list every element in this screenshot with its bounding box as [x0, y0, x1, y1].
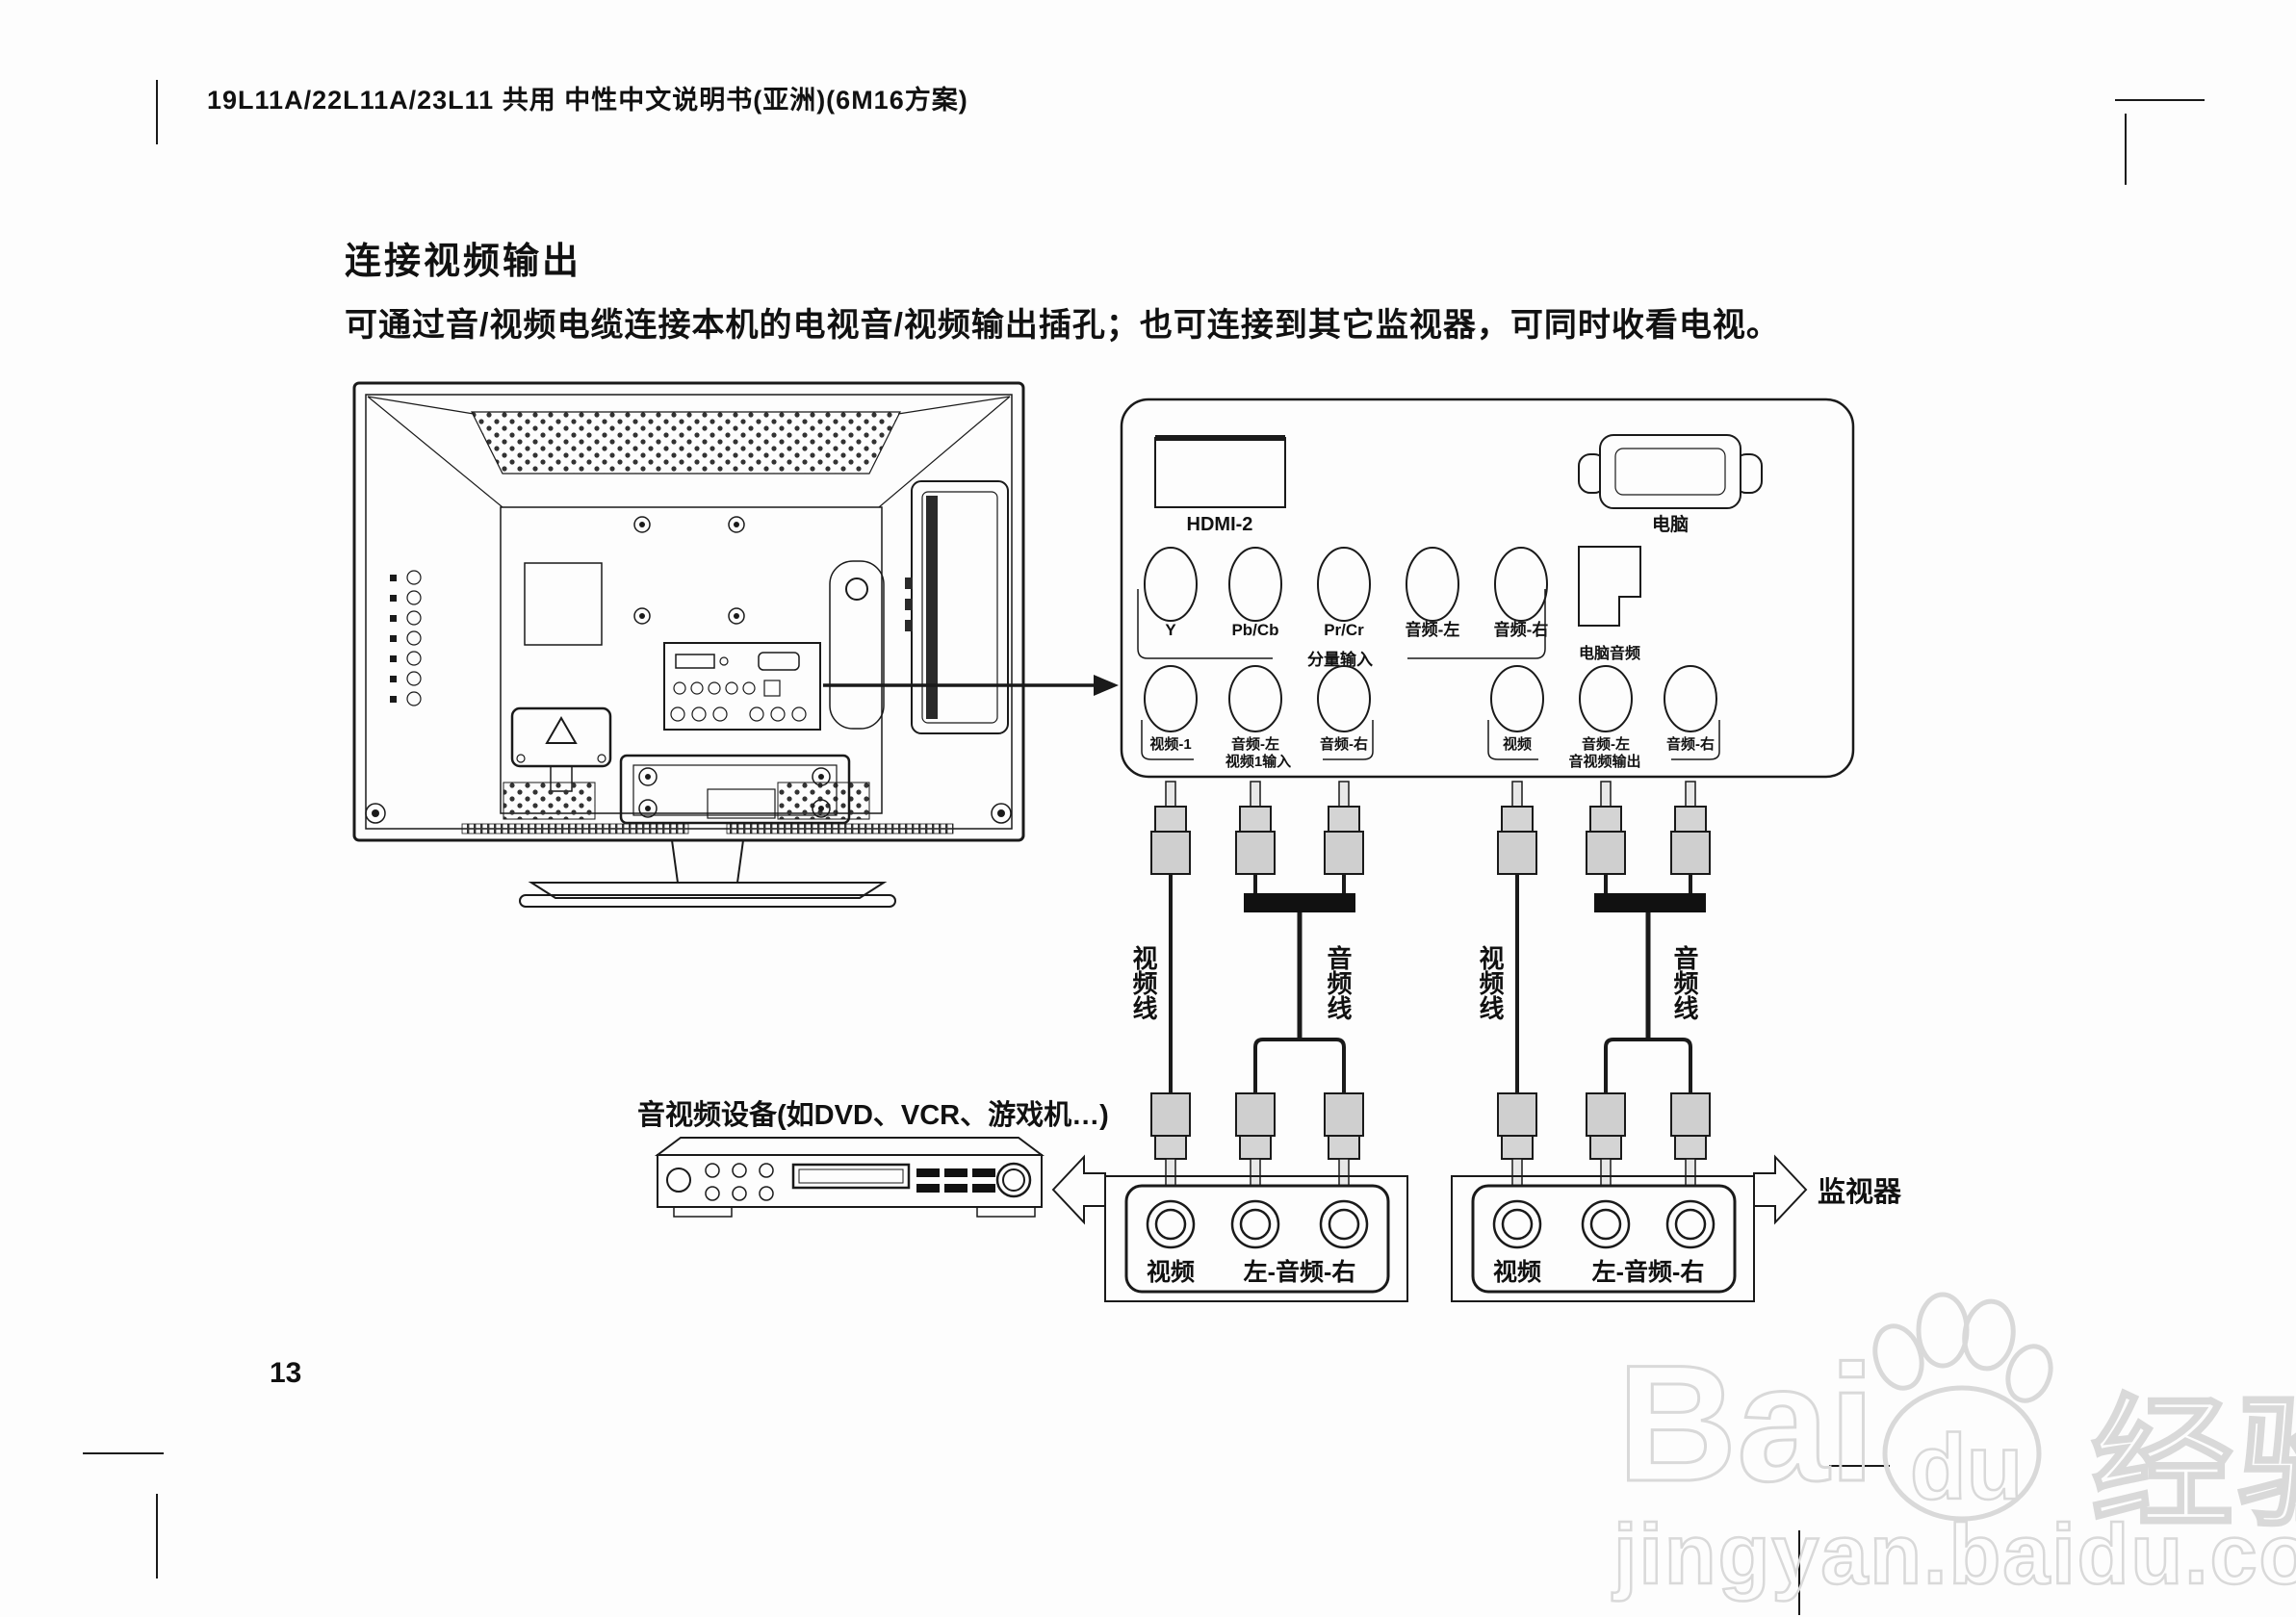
- manual-page: 19L11A/22L11A/23L11 共用 中性中文说明书(亚洲)(6M16方…: [0, 0, 2296, 1617]
- lower-rca-plugs: [1151, 1093, 1710, 1186]
- jack-label-prcr: Pr/Cr: [1324, 621, 1364, 639]
- top-vent-grille: [472, 412, 900, 474]
- box-video-label: 视频: [1493, 1259, 1541, 1286]
- jack-label-audio-right: 音频-右: [1494, 620, 1549, 639]
- tv-stand: [520, 840, 895, 907]
- avout-video-label: 视频: [1503, 735, 1532, 753]
- box-audio-label: 左-音频-右: [1592, 1258, 1705, 1286]
- avout-group-label: 音视频输出: [1568, 753, 1640, 770]
- back-cover-panel: [501, 507, 882, 813]
- av-device-label: 音视频设备(如DVD、VCR、游戏机…): [637, 1098, 1109, 1131]
- pc-audio-label: 电脑音频: [1579, 644, 1640, 662]
- upper-rca-plugs: [1151, 782, 1710, 874]
- audio-cable-label-left: 音频线: [1324, 944, 1353, 1020]
- component-jacks-row: [1145, 548, 1547, 621]
- jack-label-y: Y: [1165, 621, 1176, 639]
- avin-audio-left-label: 音频-左: [1231, 735, 1279, 753]
- video-cable-label-right: 视频线: [1476, 945, 1505, 1020]
- stand-column-cover: [830, 561, 884, 729]
- bottom-vent-left: [503, 783, 595, 819]
- avin-group-label: 视频1输入: [1225, 753, 1291, 770]
- box-video-label: 视频: [1147, 1259, 1195, 1286]
- arrow-to-monitor: [1754, 1157, 1806, 1222]
- bezel-strip-right: [727, 824, 953, 834]
- rating-label-sticker: [525, 563, 602, 645]
- vesa-mount-holes: [634, 517, 744, 624]
- jack-label-audio-left: 音频-左: [1406, 620, 1460, 639]
- side-control-buttons: [390, 571, 421, 706]
- tv-back-diagram: [354, 383, 1023, 907]
- monitor-label: 监视器: [1818, 1176, 1902, 1208]
- warning-triangle-icon: [547, 718, 576, 743]
- hdmi-port: [1155, 435, 1285, 507]
- av-device-drawing: [658, 1138, 1042, 1217]
- connection-panel: HDMI-2 电脑 Y Pb/Cb Pr/Cr 音频-左 音频-右: [1122, 399, 1853, 777]
- pc-label: 电脑: [1652, 513, 1689, 535]
- output-box-left: 视频 左-音频-右: [1105, 1176, 1407, 1301]
- video-cable-label-left: 视频线: [1129, 945, 1158, 1020]
- usb-port: [676, 654, 714, 668]
- mini-jacks-row1: [674, 680, 780, 696]
- warning-plate: [512, 708, 610, 791]
- vga-mini-port: [759, 653, 799, 670]
- disc-tray: [793, 1165, 909, 1188]
- pc-audio-jack: [1579, 547, 1640, 626]
- avin-video-label: 视频-1: [1149, 735, 1191, 753]
- box-audio-label: 左-音频-右: [1244, 1258, 1356, 1286]
- av-jacks-row: [1145, 666, 1716, 731]
- zoom-callout-arrow: [823, 675, 1119, 696]
- tv-connector-panel: [664, 643, 820, 730]
- front-buttons: [706, 1164, 773, 1200]
- crop-marks: [83, 80, 2205, 1615]
- side-panel-strip: [905, 481, 1008, 733]
- arrow-to-av-device: [1053, 1157, 1105, 1222]
- avout-audio-right-label: 音频-右: [1666, 735, 1715, 753]
- bezel-strip-left: [462, 824, 688, 834]
- avin-audio-right-label: 音频-右: [1320, 735, 1368, 753]
- vga-port: [1579, 435, 1762, 508]
- display-segments: [916, 1168, 995, 1193]
- plugs-and-cables: 视频线 音频线 视频线 音频线: [1129, 782, 1710, 1186]
- connection-diagram: HDMI-2 电脑 Y Pb/Cb Pr/Cr 音频-左 音频-右: [0, 0, 2296, 1617]
- avout-audio-left-label: 音频-左: [1582, 735, 1630, 753]
- jack-label-pbcb: Pb/Cb: [1231, 621, 1278, 639]
- mini-jacks-row2: [671, 707, 806, 721]
- audio-cable-label-right: 音频线: [1670, 944, 1699, 1020]
- power-button: [667, 1168, 690, 1192]
- output-box-right: 视频 左-音频-右: [1452, 1176, 1754, 1301]
- hdmi-label: HDMI-2: [1187, 514, 1253, 535]
